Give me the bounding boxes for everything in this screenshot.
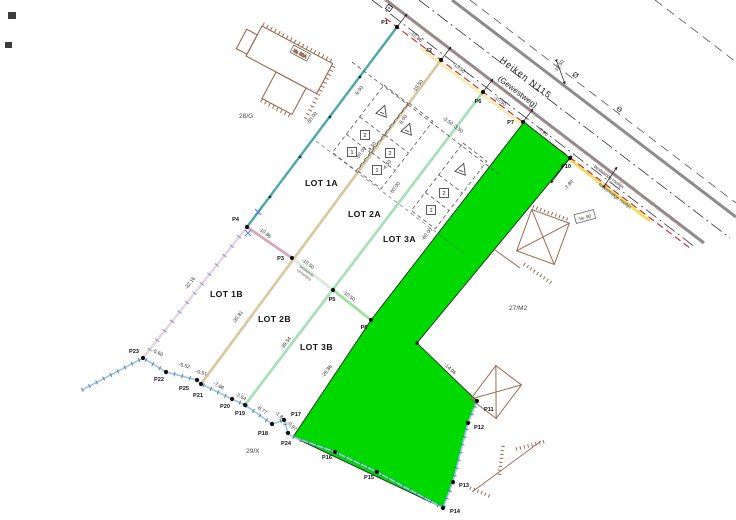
survey-point-dot <box>164 370 168 374</box>
survey-point-dot <box>230 397 234 401</box>
survey-point-label: P18 <box>258 431 268 437</box>
lot-label: LOT 3B <box>300 342 333 352</box>
parcel-label-29x: 29/X <box>246 448 260 455</box>
survey-point-dot <box>199 382 203 386</box>
survey-point-label: P15 <box>364 475 374 481</box>
survey-point-dot <box>395 25 399 29</box>
survey-point-dot <box>270 422 274 426</box>
survey-point-label: P6 <box>475 99 482 105</box>
lot-label: LOT 1A <box>305 178 338 188</box>
survey-point-label: P11 <box>484 407 494 413</box>
zone-number: 1 <box>350 150 353 156</box>
survey-point-dot <box>439 58 443 62</box>
zone-number: 2 <box>363 133 366 139</box>
survey-point-label: P24 <box>281 441 292 447</box>
survey-point-label: P25 <box>179 386 189 392</box>
survey-point-dot <box>286 431 290 435</box>
survey-point-label: P7 <box>507 120 514 126</box>
parcel-label-28g: 28/G <box>239 113 253 120</box>
survey-point-label: P14 <box>450 509 461 515</box>
notch-corner-dot <box>415 341 419 345</box>
survey-point-dot <box>245 225 249 229</box>
lot-label: LOT 3A <box>383 234 416 244</box>
survey-point-label: P23 <box>129 349 139 355</box>
survey-point-dot <box>451 480 455 484</box>
survey-point-label: P10 <box>561 164 571 170</box>
zone-number: 2 <box>442 191 445 197</box>
zone-number: 1 <box>429 208 432 214</box>
survey-point-dot <box>282 418 286 422</box>
survey-point-dot <box>141 356 145 360</box>
survey-point-dot <box>441 506 445 510</box>
survey-point-label: P17 <box>291 412 301 418</box>
lot-label: LOT 2B <box>258 314 291 324</box>
survey-point-dot <box>481 90 485 94</box>
survey-point-dot <box>331 288 335 292</box>
survey-point-label: P20 <box>220 404 230 410</box>
survey-point-dot <box>568 156 572 160</box>
cadastral-plan-canvas: Nr. 92A Ø ⊖ bes <box>0 0 736 520</box>
parcel-label-27m2: 27/M2 <box>509 305 528 312</box>
survey-point-label: P3 <box>277 256 284 262</box>
survey-point-label: P21 <box>193 393 203 399</box>
survey-point-dot <box>195 378 199 382</box>
survey-point-label: P8 <box>361 325 368 331</box>
survey-point-label: P13 <box>459 483 469 489</box>
survey-point-label: P5 <box>329 297 336 303</box>
survey-point-label: P22 <box>154 377 164 383</box>
survey-point-dot <box>475 399 479 403</box>
zone-number: 2 <box>388 151 391 157</box>
survey-point-label: P4 <box>232 217 240 223</box>
lot-label: LOT 2A <box>348 209 381 219</box>
survey-point-dot <box>521 120 525 124</box>
survey-point-dot <box>333 450 337 454</box>
survey-point-label: P1 <box>381 20 388 26</box>
lot-label: LOT 1B <box>210 289 243 299</box>
survey-point-dot <box>243 403 247 407</box>
survey-point-dot <box>369 318 373 322</box>
survey-point-dot <box>290 256 294 260</box>
zone-number: 1 <box>375 168 378 174</box>
survey-point-label: P16 <box>322 455 332 461</box>
survey-point-dot <box>375 470 379 474</box>
survey-point-label: 42 <box>426 48 432 54</box>
survey-point-dot <box>466 421 470 425</box>
survey-point-label: P12 <box>474 425 484 431</box>
survey-point-label: P19 <box>235 411 245 417</box>
